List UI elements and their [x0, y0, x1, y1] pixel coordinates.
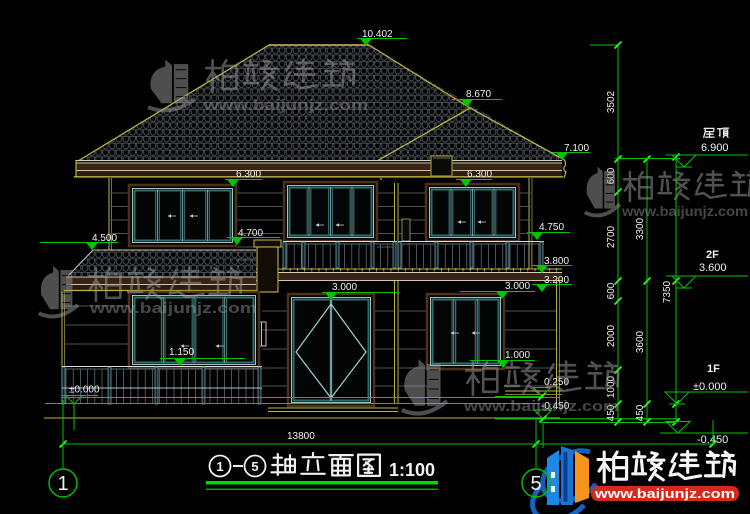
svg-text:5: 5 — [530, 473, 541, 495]
svg-text:±0.000: ±0.000 — [693, 381, 727, 393]
svg-text:www.baijunjz.com: www.baijunjz.com — [463, 398, 619, 415]
svg-text:3600: 3600 — [635, 330, 646, 353]
svg-text:3.000: 3.000 — [505, 281, 530, 292]
svg-text:6.300: 6.300 — [467, 169, 492, 180]
svg-text:6.900: 6.900 — [701, 142, 729, 154]
svg-text:2000: 2000 — [606, 324, 617, 347]
svg-text:450: 450 — [635, 404, 646, 421]
svg-text:1F: 1F — [707, 363, 720, 375]
svg-text:4.700: 4.700 — [238, 228, 263, 239]
svg-text:1: 1 — [57, 473, 68, 495]
svg-text:600: 600 — [606, 282, 617, 299]
svg-text:±0.000: ±0.000 — [69, 385, 100, 396]
svg-text:13800: 13800 — [287, 431, 315, 442]
svg-text:1: 1 — [216, 459, 223, 474]
svg-text:8.670: 8.670 — [466, 89, 491, 100]
svg-text:www.baijunjz.com: www.baijunjz.com — [203, 97, 368, 114]
svg-text:1:100: 1:100 — [389, 460, 435, 480]
svg-text:3.200: 3.200 — [544, 275, 569, 286]
svg-text:3502: 3502 — [606, 90, 617, 113]
svg-text:www.baijunjz.com: www.baijunjz.com — [594, 486, 735, 501]
svg-text:4.750: 4.750 — [539, 222, 564, 233]
svg-text:4.500: 4.500 — [92, 233, 117, 244]
svg-text:7350: 7350 — [662, 280, 673, 303]
svg-text:3.000: 3.000 — [332, 282, 357, 293]
svg-text:5: 5 — [251, 459, 258, 474]
svg-text:www.baijunjz.com: www.baijunjz.com — [621, 203, 748, 219]
svg-text:3.800: 3.800 — [544, 256, 569, 267]
svg-text:3300: 3300 — [635, 217, 646, 240]
svg-text:7.100: 7.100 — [564, 143, 589, 154]
svg-text:www.baijunjz.com: www.baijunjz.com — [89, 300, 257, 317]
svg-text:6.300: 6.300 — [236, 169, 261, 180]
svg-text:2F: 2F — [706, 249, 719, 261]
svg-text:1.150: 1.150 — [169, 347, 194, 358]
svg-text:3.600: 3.600 — [699, 262, 727, 274]
svg-text:10.402: 10.402 — [362, 29, 393, 40]
svg-text:2700: 2700 — [606, 225, 617, 248]
svg-text:1.000: 1.000 — [505, 350, 530, 361]
